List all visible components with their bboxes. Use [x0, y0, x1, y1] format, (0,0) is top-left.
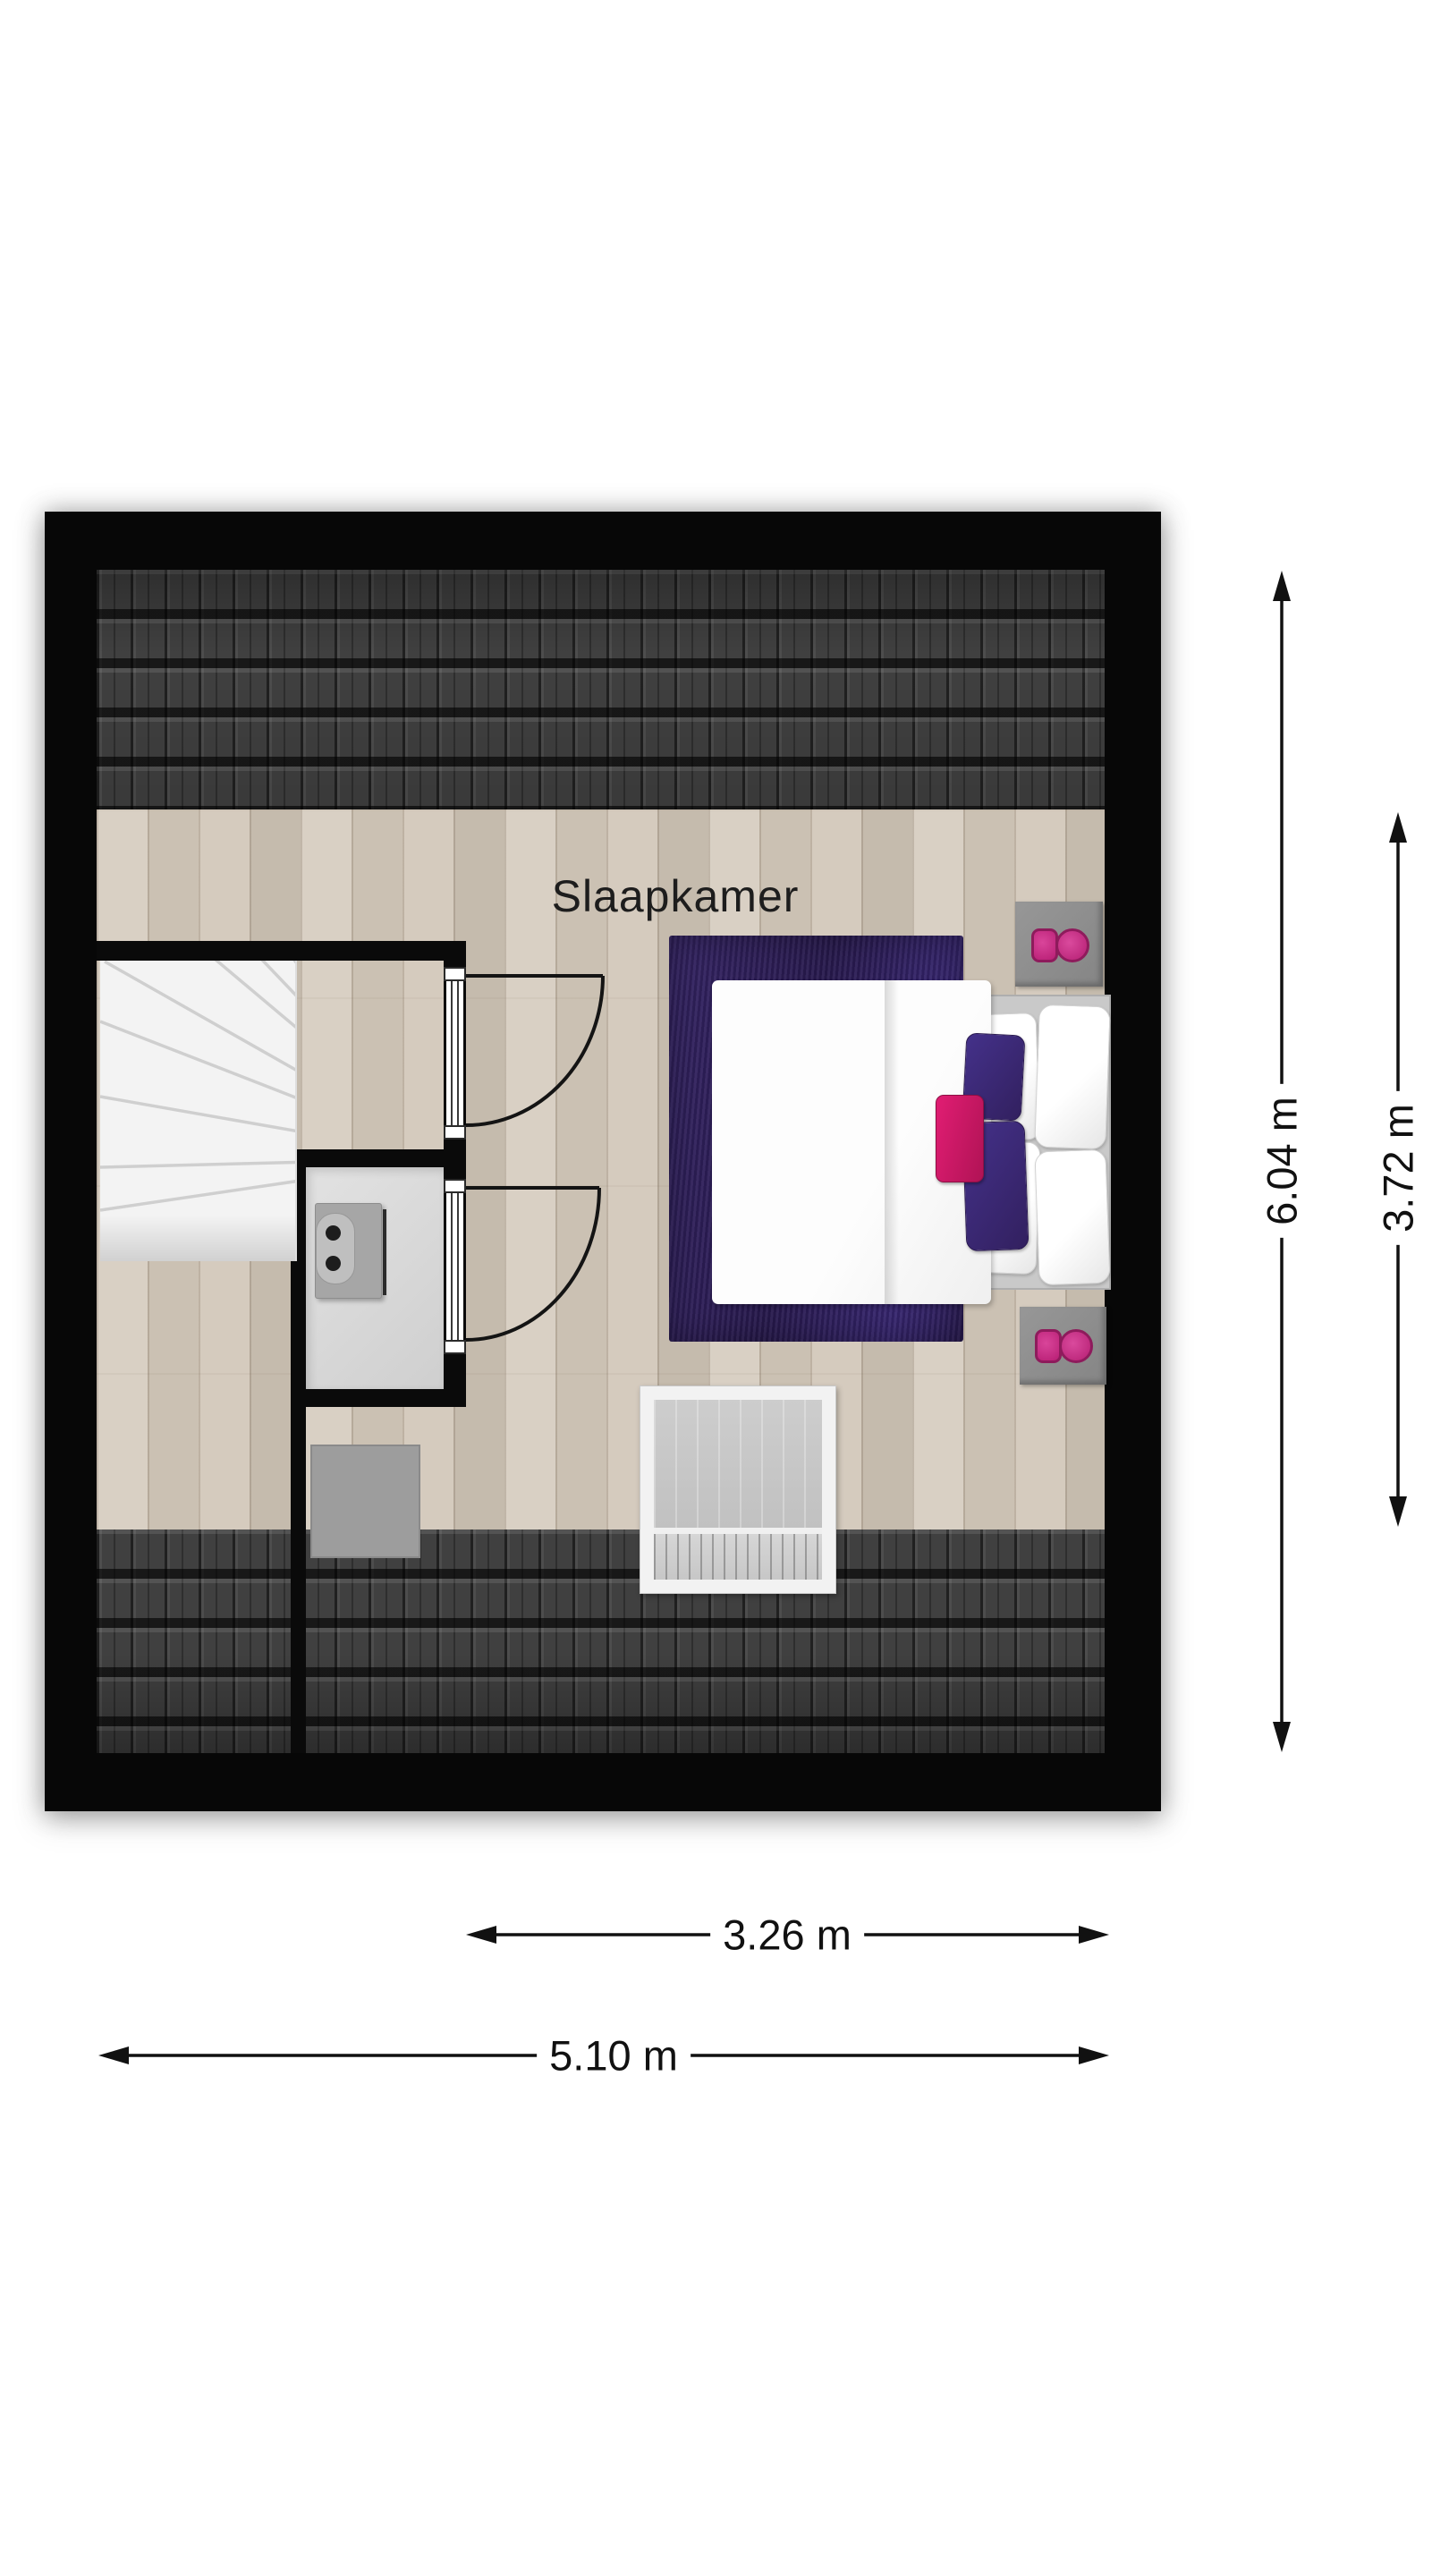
bed-pillow — [1034, 1004, 1111, 1150]
dimension-inner-height: 3.72 m — [1372, 1091, 1425, 1245]
nightstand-decor-icon — [1055, 928, 1089, 962]
door-bottom-panel — [446, 1193, 463, 1340]
roof-tiles-top — [97, 570, 1105, 809]
toilet-flush-button-1 — [326, 1225, 341, 1241]
toilet-flush-plate — [316, 1213, 355, 1284]
door-jamb — [444, 967, 466, 981]
nightstand-decor-icon — [1035, 1329, 1062, 1363]
door-jamb — [444, 1179, 466, 1193]
dimension-outer-height: 6.04 m — [1256, 1084, 1309, 1238]
floorplan-page: Slaapkamer 6.04 m 3.72 m 3.26 m 5.10 m — [0, 0, 1449, 2576]
roof-tiles-bottom — [97, 1529, 1105, 1753]
door-jamb — [444, 1125, 466, 1140]
door-jamb — [444, 1340, 466, 1354]
stair-block-top-wall — [97, 941, 466, 961]
toilet-seat-edge — [383, 1209, 386, 1295]
chimney-block — [310, 1445, 420, 1558]
roof-window — [640, 1385, 836, 1594]
bed-pillow — [1034, 1149, 1110, 1286]
accent-pillow-pink — [936, 1095, 984, 1182]
roof-window-grille — [654, 1534, 822, 1580]
dimension-outer-width: 5.10 m — [537, 2029, 691, 2082]
roof-window-glass — [654, 1400, 822, 1580]
duvet-fold — [885, 980, 899, 1304]
nightstand-decor-icon — [1031, 928, 1058, 962]
wc-bottom-wall — [291, 1389, 466, 1407]
dimension-inner-width: 3.26 m — [710, 1909, 864, 1962]
stair-bottom-shadow — [100, 1215, 295, 1261]
lower-partition-wall — [291, 1407, 306, 1753]
toilet-flush-button-2 — [326, 1256, 341, 1271]
wc-top-wall — [291, 1149, 466, 1167]
roof-window-divider — [654, 1528, 822, 1534]
staircase — [100, 961, 297, 1261]
nightstand-decor-icon — [1059, 1329, 1093, 1363]
room-name-label: Slaapkamer — [552, 870, 800, 922]
door-top-panel — [446, 981, 463, 1125]
